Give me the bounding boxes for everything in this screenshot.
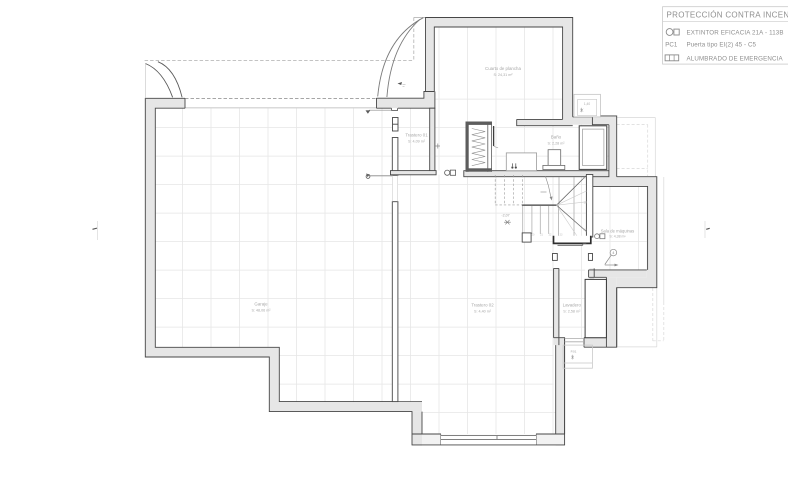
svg-text:Garaje: Garaje bbox=[254, 302, 268, 307]
svg-text:1,40: 1,40 bbox=[584, 102, 590, 106]
svg-text:S: 4,09 m²: S: 4,09 m² bbox=[408, 139, 426, 143]
svg-text:16: 16 bbox=[583, 177, 586, 180]
svg-text:ALUMBRADO DE EMERGENCIA: ALUMBRADO DE EMERGENCIA bbox=[687, 56, 784, 63]
svg-text:Sala de máquinas: Sala de máquinas bbox=[601, 228, 635, 233]
svg-text:Baño: Baño bbox=[551, 135, 562, 140]
svg-text:4: 4 bbox=[612, 251, 614, 255]
svg-text:Trastero 02: Trastero 02 bbox=[471, 303, 494, 308]
svg-text:Cuarto de plancha: Cuarto de plancha bbox=[485, 66, 521, 71]
svg-text:Puerta tipo EI(2) 45 - C5: Puerta tipo EI(2) 45 - C5 bbox=[687, 42, 757, 49]
svg-text:S: 2,58 m²: S: 2,58 m² bbox=[563, 309, 581, 313]
svg-text:21: 21 bbox=[540, 233, 543, 236]
svg-text:S: 4,38 m²: S: 4,38 m² bbox=[609, 234, 626, 238]
svg-text:20: 20 bbox=[532, 233, 535, 236]
svg-text:S: 24,31 m²: S: 24,31 m² bbox=[493, 73, 513, 77]
svg-text:EXTINTOR EFICACIA 21A - 113B: EXTINTOR EFICACIA 21A - 113B bbox=[687, 30, 784, 37]
svg-text:PC1: PC1 bbox=[665, 42, 678, 49]
svg-text:P.01: P.01 bbox=[571, 349, 577, 353]
svg-text:S: 4,40 m²: S: 4,40 m² bbox=[474, 309, 492, 313]
svg-text:Lavadero: Lavadero bbox=[563, 303, 582, 308]
svg-text:S: 2,28 m²: S: 2,28 m² bbox=[547, 141, 565, 145]
svg-text:22: 22 bbox=[549, 233, 552, 236]
svg-text:-2,07: -2,07 bbox=[501, 213, 509, 217]
svg-text:Trastero 01: Trastero 01 bbox=[405, 133, 428, 138]
svg-text:S: 48,06 m²: S: 48,06 m² bbox=[251, 308, 271, 312]
svg-text:PROTECCIÓN CONTRA INCENDIOS: PROTECCIÓN CONTRA INCENDIOS bbox=[667, 11, 788, 20]
